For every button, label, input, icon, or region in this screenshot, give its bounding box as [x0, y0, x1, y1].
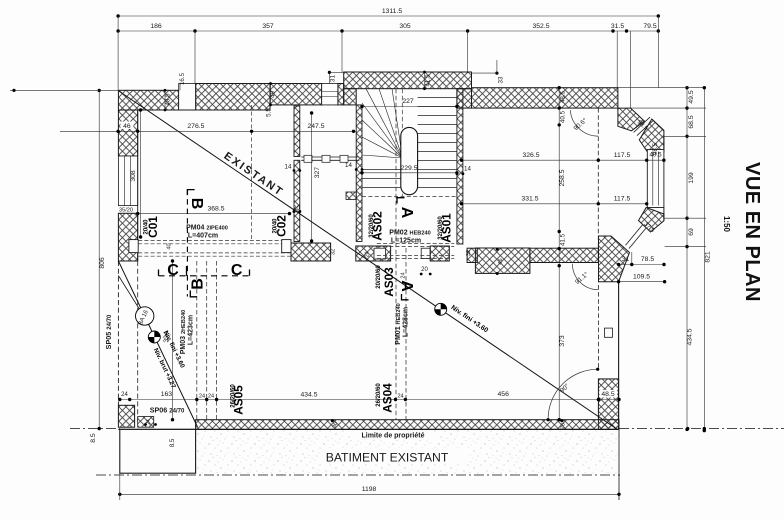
- svg-text:821: 821: [705, 251, 712, 263]
- svg-text:41.5: 41.5: [425, 74, 432, 87]
- svg-text:24: 24: [121, 392, 128, 398]
- svg-text:20: 20: [421, 267, 428, 273]
- svg-text:AS04: AS04: [381, 383, 395, 413]
- svg-text:31: 31: [330, 75, 337, 82]
- svg-text:26/20/60: 26/20/60: [376, 383, 382, 407]
- svg-text:368.5: 368.5: [207, 205, 224, 212]
- svg-text:24: 24: [208, 394, 214, 400]
- svg-text:434.5: 434.5: [300, 391, 317, 398]
- svg-text:31.5: 31.5: [611, 23, 624, 30]
- svg-text:32/20/60: 32/20/60: [369, 214, 375, 238]
- svg-text:373: 373: [559, 335, 566, 347]
- svg-text:352.5: 352.5: [532, 23, 549, 30]
- svg-text:SP06 24/70: SP06 24/70: [150, 406, 185, 415]
- svg-text:40.5: 40.5: [560, 110, 567, 123]
- svg-text:199: 199: [688, 172, 695, 184]
- svg-text:1:50: 1:50: [722, 216, 731, 233]
- svg-text:VUE EN PLAN: VUE EN PLAN: [741, 162, 763, 302]
- svg-text:B: B: [190, 278, 207, 290]
- svg-text:14: 14: [345, 162, 352, 169]
- svg-text:31: 31: [622, 256, 630, 263]
- svg-text:32: 32: [466, 250, 472, 256]
- svg-text:90°: 90°: [558, 382, 571, 395]
- svg-text:229.5: 229.5: [400, 165, 417, 172]
- svg-text:308: 308: [130, 170, 137, 182]
- svg-text:16.5: 16.5: [179, 72, 186, 85]
- svg-text:40: 40: [167, 243, 173, 249]
- svg-text:78.5: 78.5: [641, 256, 654, 263]
- svg-text:331.5: 331.5: [521, 196, 538, 203]
- svg-text:41.5: 41.5: [560, 233, 567, 246]
- svg-text:1311.5: 1311.5: [382, 8, 403, 15]
- svg-text:48.5: 48.5: [560, 90, 567, 103]
- svg-text:20/40: 20/40: [273, 218, 279, 234]
- svg-text:PM02 HEB240: PM02 HEB240: [389, 230, 430, 237]
- svg-text:163: 163: [161, 391, 173, 398]
- svg-text:48.5: 48.5: [165, 93, 172, 106]
- svg-text:PM04 2IPE400: PM04 2IPE400: [186, 225, 228, 232]
- svg-text:Limite de propriété: Limite de propriété: [361, 433, 424, 440]
- svg-text:227: 227: [402, 98, 414, 105]
- svg-text:8.5: 8.5: [90, 433, 97, 443]
- svg-text:117.5: 117.5: [614, 196, 631, 203]
- svg-text:357: 357: [262, 23, 274, 30]
- svg-text:117.5: 117.5: [614, 152, 631, 159]
- svg-text:L=407cm: L=407cm: [188, 233, 218, 240]
- svg-text:48.5: 48.5: [601, 391, 614, 398]
- svg-text:46: 46: [498, 258, 504, 264]
- svg-text:20/20/60: 20/20/60: [376, 265, 382, 289]
- svg-text:46: 46: [123, 123, 131, 130]
- svg-text:276.5: 276.5: [187, 123, 204, 130]
- svg-text:L=428cm: L=428cm: [403, 307, 410, 337]
- svg-text:C: C: [231, 262, 243, 279]
- svg-text:326.5: 326.5: [522, 152, 539, 159]
- svg-text:20/40: 20/40: [144, 219, 150, 235]
- svg-text:24: 24: [397, 394, 403, 400]
- svg-text:33: 33: [498, 76, 505, 83]
- svg-text:68.5: 68.5: [688, 115, 695, 128]
- svg-text:14: 14: [285, 164, 292, 171]
- svg-text:69: 69: [688, 228, 695, 236]
- svg-text:AS03: AS03: [382, 267, 396, 297]
- svg-text:1198: 1198: [362, 486, 377, 493]
- svg-text:79.5: 79.5: [643, 23, 656, 30]
- svg-text:24: 24: [401, 272, 407, 278]
- svg-text:98.5: 98.5: [652, 142, 659, 155]
- svg-text:305: 305: [399, 23, 411, 30]
- svg-text:8.5: 8.5: [170, 438, 176, 447]
- svg-text:A: A: [398, 207, 415, 219]
- svg-text:BATIMENT EXISTANT: BATIMENT EXISTANT: [326, 451, 449, 465]
- svg-text:32: 32: [331, 249, 337, 255]
- svg-text:EXISTANT: EXISTANT: [222, 150, 286, 199]
- svg-text:35/20: 35/20: [119, 208, 133, 214]
- svg-text:PM01 HEB240: PM01 HEB240: [395, 303, 402, 344]
- svg-text:SP05 24/70: SP05 24/70: [104, 314, 113, 349]
- svg-text:L=125cm: L=125cm: [391, 238, 421, 245]
- svg-text:24: 24: [365, 252, 371, 258]
- svg-text:C: C: [167, 262, 179, 279]
- svg-text:14: 14: [464, 166, 471, 173]
- svg-text:24: 24: [199, 394, 205, 400]
- svg-text:32/20/60: 32/20/60: [438, 216, 444, 240]
- svg-text:327: 327: [314, 167, 321, 179]
- svg-text:PM03 2HEB240: PM03 2HEB240: [180, 310, 187, 355]
- svg-text:26/20/60: 26/20/60: [230, 384, 236, 408]
- svg-text:806: 806: [99, 257, 106, 269]
- svg-text:258.5: 258.5: [559, 169, 566, 186]
- svg-text:B: B: [188, 198, 205, 210]
- svg-text:434.5: 434.5: [687, 328, 694, 345]
- svg-text:186: 186: [150, 23, 162, 30]
- svg-text:5.5: 5.5: [265, 108, 272, 117]
- svg-text:456: 456: [498, 391, 510, 398]
- svg-text:49.5: 49.5: [688, 90, 695, 103]
- svg-text:20: 20: [293, 206, 300, 212]
- svg-text:247.5: 247.5: [307, 123, 324, 130]
- svg-text:A: A: [398, 280, 415, 292]
- svg-text:L=423cm: L=423cm: [188, 315, 195, 345]
- svg-text:24: 24: [146, 419, 152, 425]
- svg-text:109.5: 109.5: [633, 273, 650, 280]
